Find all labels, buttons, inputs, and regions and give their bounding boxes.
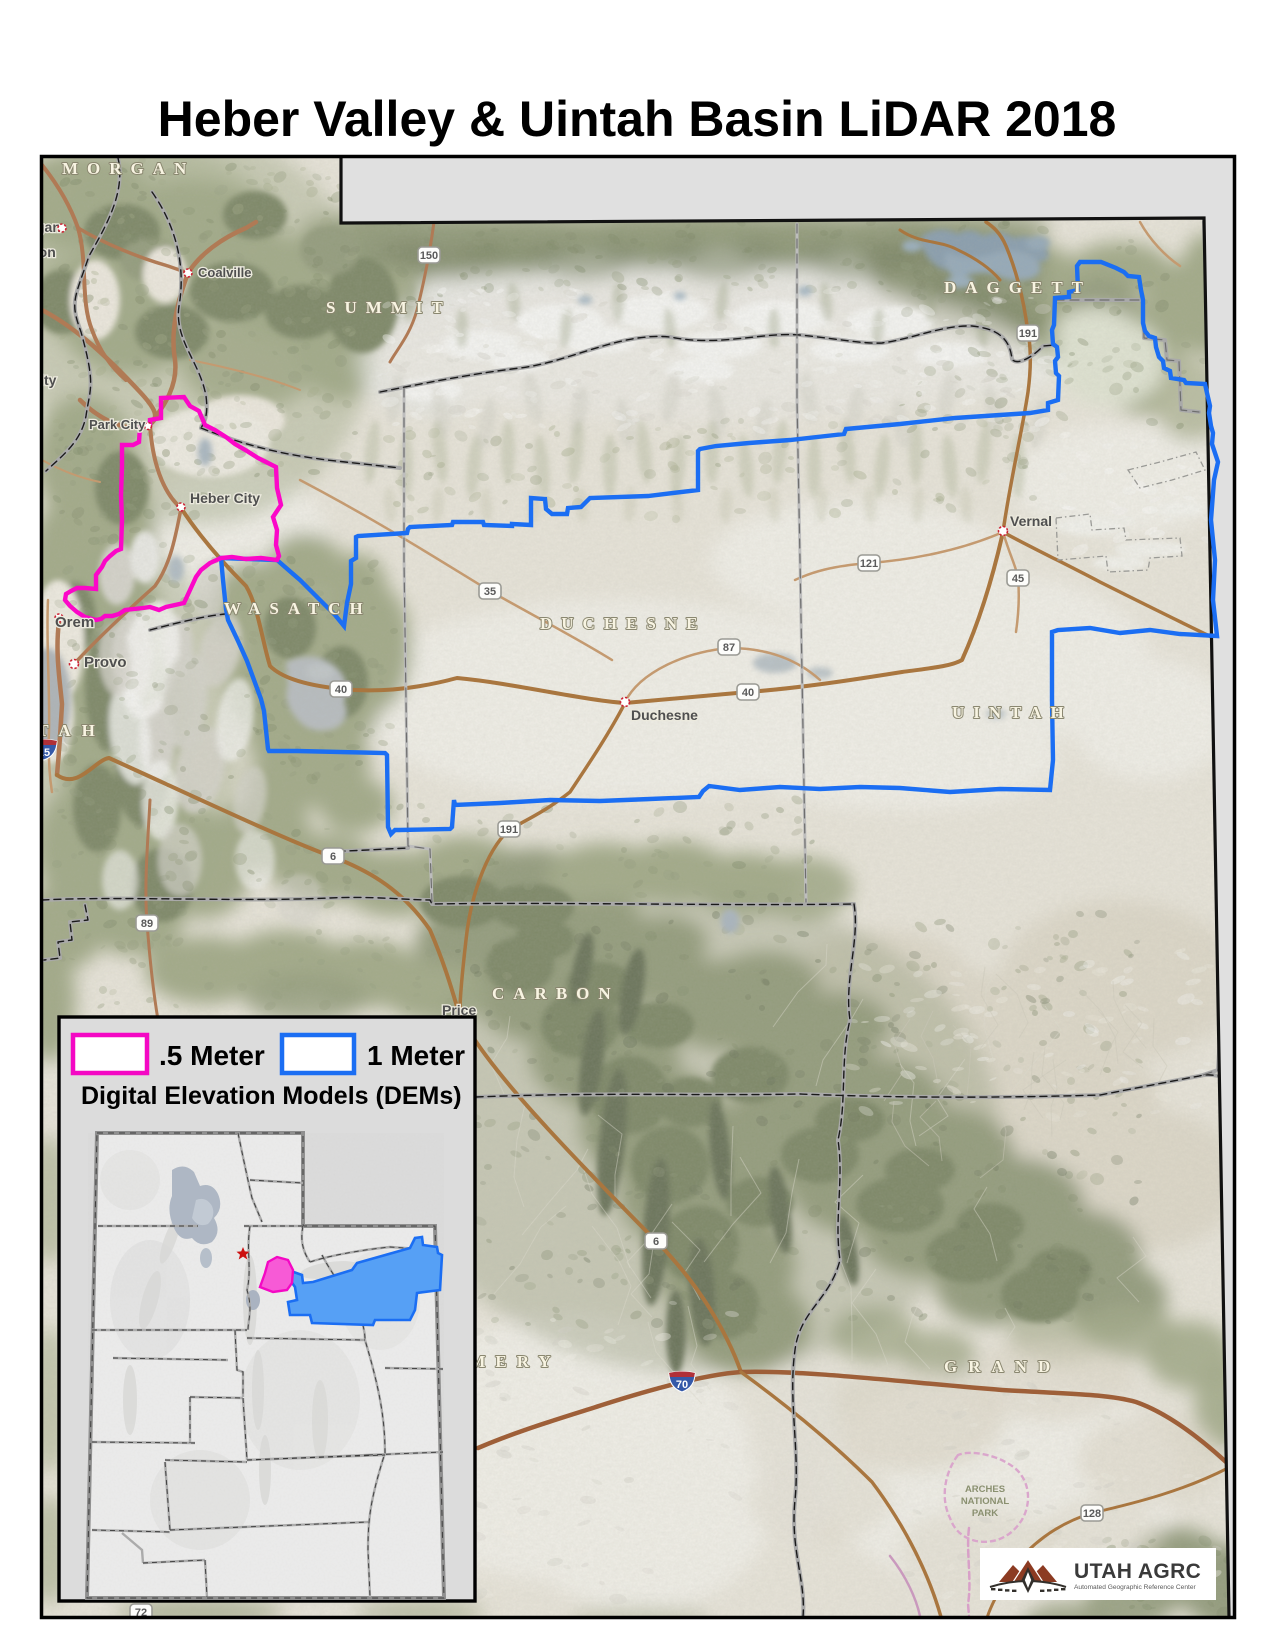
svg-text:87: 87 — [723, 642, 735, 654]
svg-text:Provo: Provo — [84, 654, 127, 671]
svg-text:Automated Geographic Reference: Automated Geographic Reference Center — [1074, 1584, 1196, 1591]
svg-text:191: 191 — [1019, 328, 1037, 340]
svg-text:Heber City: Heber City — [190, 490, 260, 506]
svg-text:70: 70 — [676, 1379, 688, 1391]
svg-text:150: 150 — [420, 250, 438, 262]
svg-text:DAGGETT: DAGGETT — [944, 278, 1092, 297]
svg-text:Vernal: Vernal — [1010, 513, 1052, 529]
svg-text:121: 121 — [860, 558, 878, 570]
svg-text:MORGAN: MORGAN — [62, 159, 195, 178]
svg-text:ARCHES: ARCHES — [965, 1484, 1005, 1495]
svg-text:Orem: Orem — [55, 614, 94, 631]
svg-text:6: 6 — [653, 1236, 659, 1248]
svg-text:191: 191 — [500, 824, 518, 836]
svg-text:CARBON: CARBON — [492, 984, 620, 1003]
svg-text:PARK: PARK — [972, 1508, 998, 1519]
svg-text:Heber Valley & Uintah Basin Li: Heber Valley & Uintah Basin LiDAR 2018 — [158, 91, 1117, 147]
svg-text:Duchesne: Duchesne — [631, 707, 698, 723]
svg-text:40: 40 — [335, 684, 347, 696]
svg-text:Park City: Park City — [89, 417, 146, 432]
svg-text:128: 128 — [1083, 1508, 1101, 1520]
svg-text:1 Meter: 1 Meter — [367, 1040, 465, 1071]
svg-text:35: 35 — [484, 586, 496, 598]
svg-text:40: 40 — [742, 687, 754, 699]
svg-text:DUCHESNE: DUCHESNE — [540, 614, 706, 633]
svg-text:Coalville: Coalville — [198, 265, 251, 280]
svg-text:.5 Meter: .5 Meter — [159, 1040, 265, 1071]
svg-text:GRAND: GRAND — [944, 1357, 1061, 1376]
svg-text:UTAH AGRC: UTAH AGRC — [1074, 1560, 1201, 1583]
svg-text:SUMMIT: SUMMIT — [326, 298, 452, 317]
svg-text:WASATCH: WASATCH — [224, 599, 372, 618]
svg-text:89: 89 — [141, 918, 153, 930]
svg-text:6: 6 — [330, 851, 336, 863]
svg-text:45: 45 — [1012, 573, 1024, 585]
svg-text:UINTAH: UINTAH — [952, 703, 1073, 722]
svg-text:Digital Elevation Models (DEMs: Digital Elevation Models (DEMs) — [81, 1082, 462, 1110]
svg-text:NATIONAL: NATIONAL — [961, 1496, 1010, 1507]
